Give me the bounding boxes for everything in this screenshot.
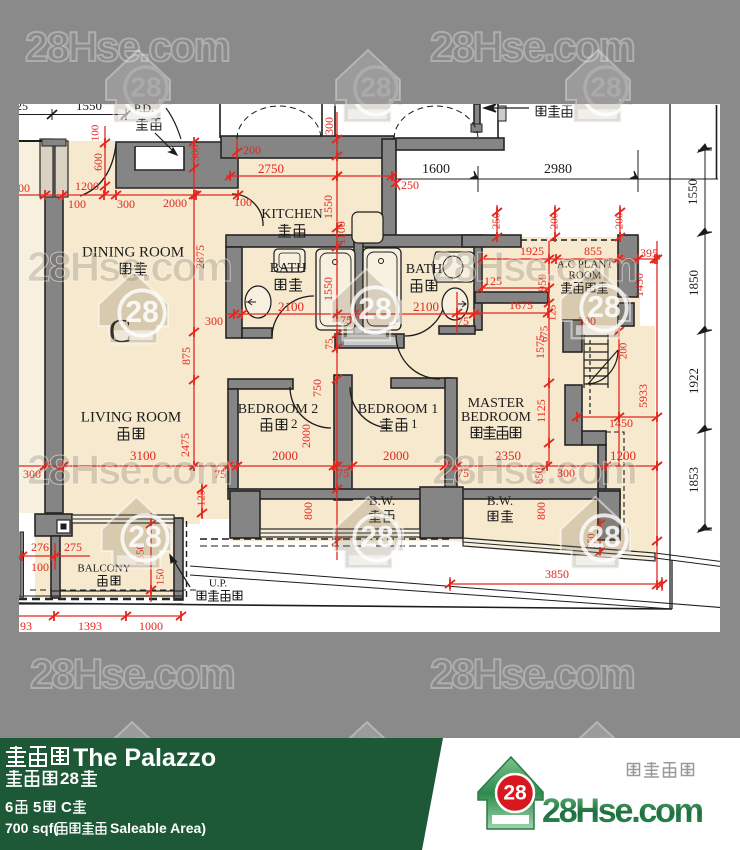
svg-text:125: 125 xyxy=(547,304,559,321)
svg-text:600: 600 xyxy=(91,153,105,171)
svg-text:1200: 1200 xyxy=(75,179,99,193)
svg-text:300: 300 xyxy=(322,117,336,135)
svg-text:2100: 2100 xyxy=(413,299,439,314)
svg-text:1922: 1922 xyxy=(686,368,701,394)
svg-text:Saleable Area): Saleable Area) xyxy=(110,820,206,836)
svg-text:200: 200 xyxy=(549,212,561,229)
svg-text:28: 28 xyxy=(60,769,79,788)
svg-text:28: 28 xyxy=(128,521,162,554)
svg-text:2000: 2000 xyxy=(272,448,298,463)
svg-text:MASTER: MASTER xyxy=(468,396,525,411)
svg-text:75: 75 xyxy=(457,314,469,328)
svg-text:28: 28 xyxy=(358,293,392,326)
svg-text:28: 28 xyxy=(587,291,621,324)
svg-text:395: 395 xyxy=(640,246,658,260)
svg-text:28: 28 xyxy=(125,296,159,329)
svg-text:00: 00 xyxy=(18,181,30,195)
svg-text:700 sqf(: 700 sqf( xyxy=(5,820,58,836)
svg-text:100: 100 xyxy=(31,560,49,574)
svg-text:800: 800 xyxy=(301,502,315,520)
svg-text:200: 200 xyxy=(618,342,630,359)
svg-text:3850: 3850 xyxy=(545,567,569,581)
svg-text:KITCHEN: KITCHEN xyxy=(261,207,322,222)
svg-text:5933: 5933 xyxy=(636,384,650,408)
svg-text:5: 5 xyxy=(33,799,41,816)
svg-text:The Palazzo: The Palazzo xyxy=(73,744,216,772)
svg-text:1450: 1450 xyxy=(609,416,633,430)
svg-text:2000: 2000 xyxy=(163,196,187,210)
svg-text:250: 250 xyxy=(401,178,419,192)
svg-text:2100: 2100 xyxy=(278,299,304,314)
svg-text:1850: 1850 xyxy=(686,270,701,296)
svg-text:1000: 1000 xyxy=(139,619,163,633)
svg-text:1550: 1550 xyxy=(685,179,700,205)
svg-text:75: 75 xyxy=(324,338,336,350)
svg-text:300: 300 xyxy=(117,197,135,211)
svg-text:B.W.: B.W. xyxy=(487,493,513,508)
svg-text:300: 300 xyxy=(190,144,202,161)
svg-text:2000: 2000 xyxy=(383,448,409,463)
svg-text:1575: 1575 xyxy=(533,335,547,359)
svg-text:1675: 1675 xyxy=(509,298,533,312)
svg-text:250: 250 xyxy=(491,212,503,229)
svg-text:100: 100 xyxy=(90,124,102,141)
svg-text:2000: 2000 xyxy=(299,424,313,448)
svg-text:1100: 1100 xyxy=(334,221,348,245)
svg-text:300: 300 xyxy=(205,314,223,328)
svg-text:100: 100 xyxy=(234,195,252,209)
svg-text:93: 93 xyxy=(20,619,32,633)
svg-text:1600: 1600 xyxy=(422,162,450,177)
svg-text:28Hse.com: 28Hse.com xyxy=(30,650,234,697)
svg-text:2750: 2750 xyxy=(258,161,284,176)
svg-text:200: 200 xyxy=(243,143,261,157)
svg-text:75: 75 xyxy=(337,466,349,480)
svg-text:750: 750 xyxy=(310,379,324,397)
svg-text:150: 150 xyxy=(155,568,167,585)
svg-text:875: 875 xyxy=(179,347,193,365)
svg-text:28: 28 xyxy=(360,71,391,102)
svg-text:1393: 1393 xyxy=(78,619,102,633)
svg-text:1125: 1125 xyxy=(534,399,548,423)
svg-text:BEDROOM: BEDROOM xyxy=(461,410,532,425)
svg-text:2: 2 xyxy=(291,416,298,431)
svg-text:28: 28 xyxy=(130,71,161,102)
svg-text:1: 1 xyxy=(411,416,418,431)
svg-text:C: C xyxy=(61,799,72,816)
svg-text:2980: 2980 xyxy=(544,162,572,177)
svg-text:BATH: BATH xyxy=(270,261,307,276)
svg-text:BEDROOM 2: BEDROOM 2 xyxy=(238,402,319,417)
svg-text:BEDROOM 1: BEDROOM 1 xyxy=(358,402,439,417)
svg-text:LIVING ROOM: LIVING ROOM xyxy=(81,409,181,425)
svg-text:6: 6 xyxy=(5,799,13,816)
svg-text:28: 28 xyxy=(590,71,621,102)
svg-text:28Hse.com: 28Hse.com xyxy=(430,650,634,697)
svg-text:275: 275 xyxy=(64,540,82,554)
svg-text:100: 100 xyxy=(68,197,86,211)
svg-text:28Hse.com: 28Hse.com xyxy=(542,792,703,830)
svg-text:1853: 1853 xyxy=(686,467,701,493)
svg-text:1550: 1550 xyxy=(321,195,335,219)
svg-text:1550: 1550 xyxy=(321,277,335,301)
svg-text:200: 200 xyxy=(614,212,626,229)
svg-text:276: 276 xyxy=(31,540,49,554)
svg-text:28Hse.com: 28Hse.com xyxy=(432,446,636,493)
svg-text:800: 800 xyxy=(534,502,548,520)
svg-text:28: 28 xyxy=(360,521,394,554)
svg-text:28: 28 xyxy=(503,782,527,805)
svg-text:28: 28 xyxy=(587,521,621,554)
svg-text:28Hse.com: 28Hse.com xyxy=(27,446,231,493)
svg-text:U.P.: U.P. xyxy=(209,578,228,590)
